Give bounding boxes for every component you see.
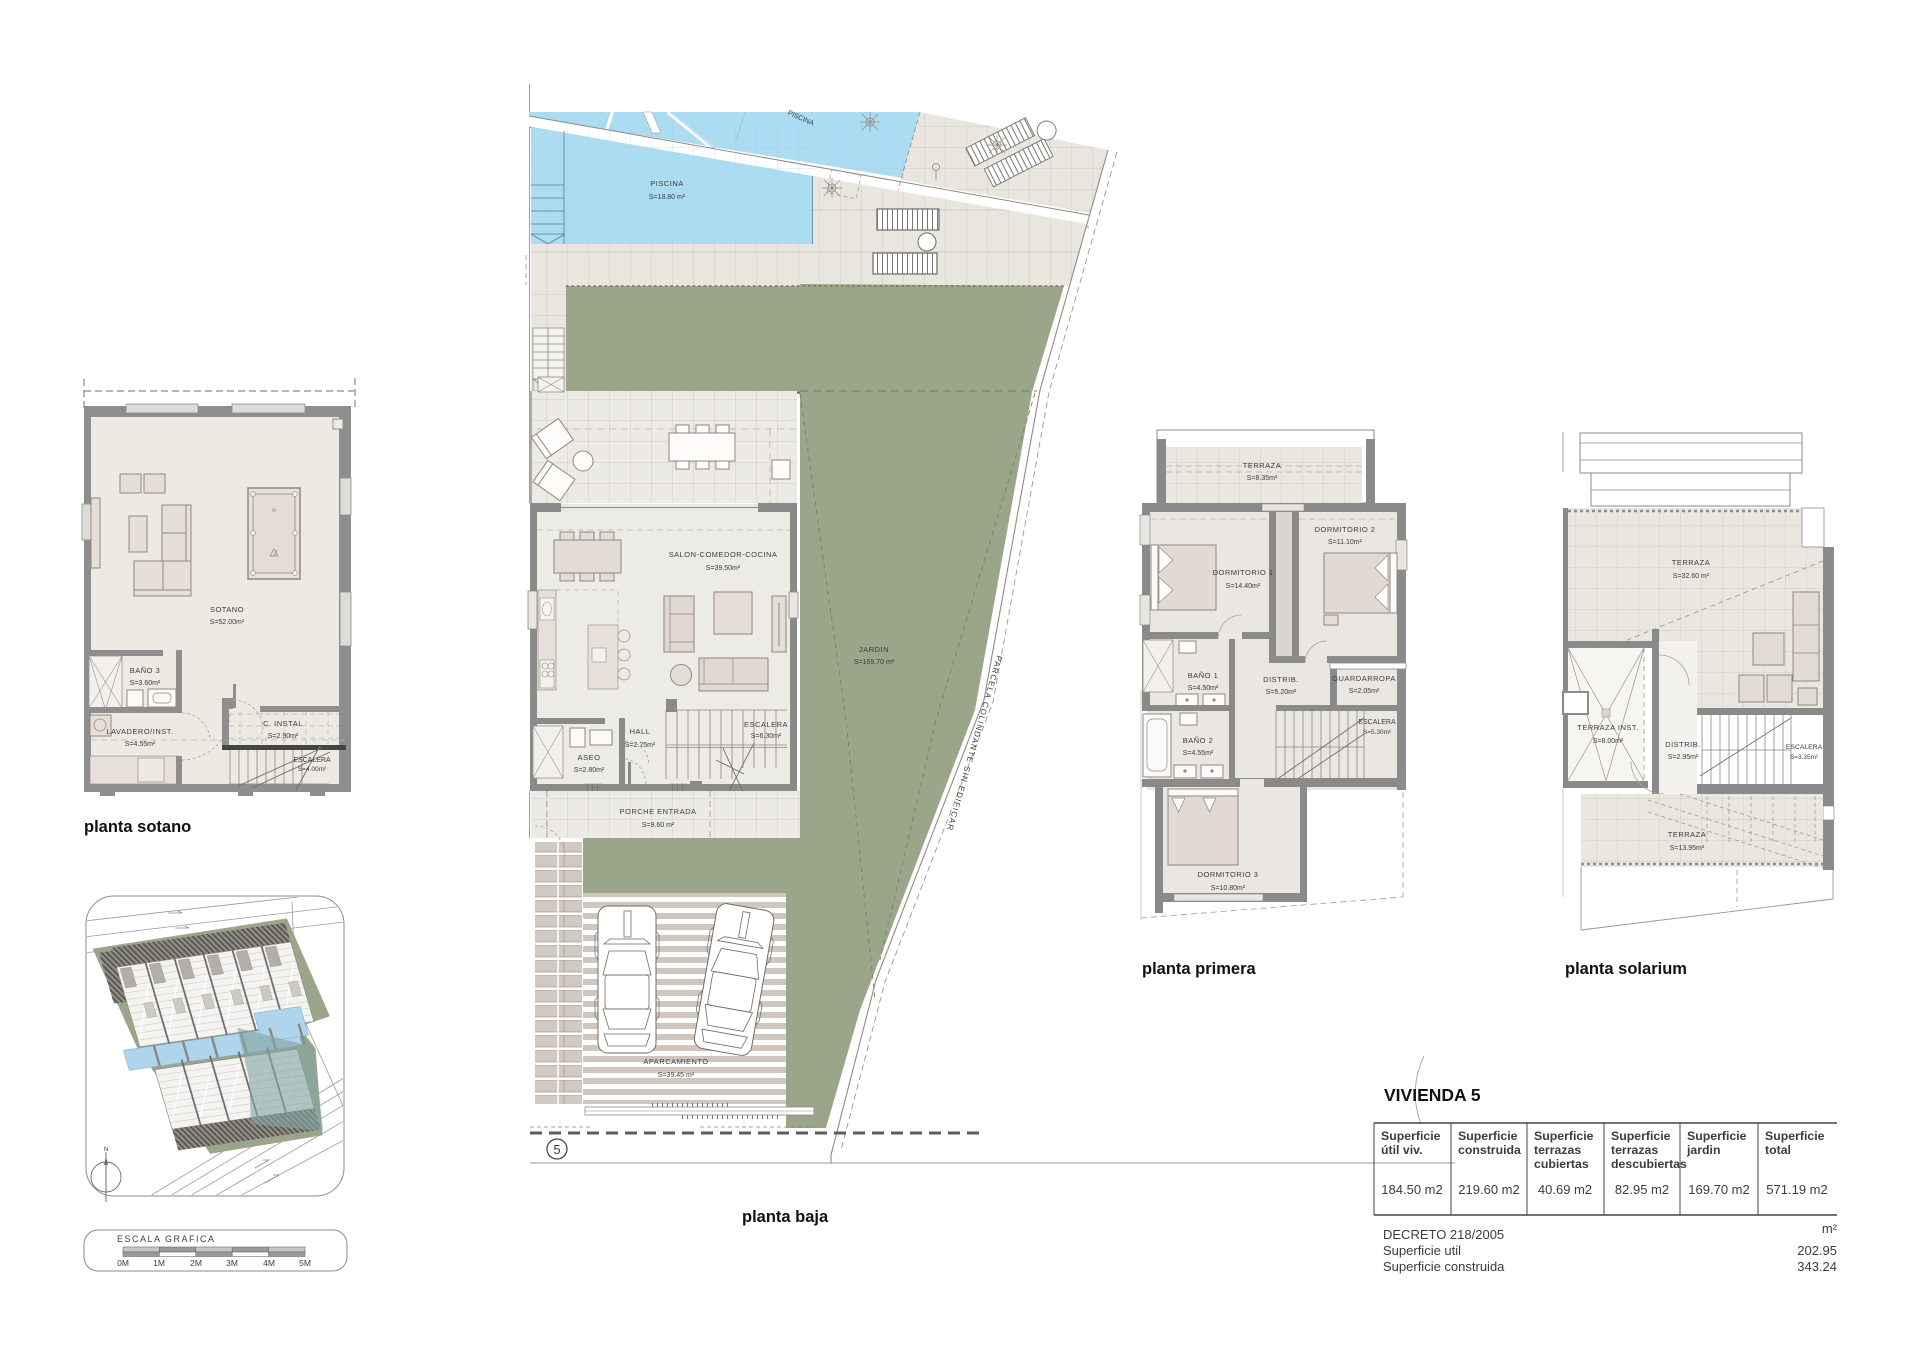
svg-text:descubiertas: descubiertas — [1611, 1157, 1687, 1171]
svg-text:184.50 m2: 184.50 m2 — [1381, 1182, 1442, 1197]
svg-text:DORMITORIO 3: DORMITORIO 3 — [1198, 870, 1259, 879]
svg-text:TERRAZA INST.: TERRAZA INST. — [1577, 723, 1639, 732]
svg-text:202.95: 202.95 — [1797, 1243, 1837, 1258]
svg-text:0M: 0M — [117, 1258, 129, 1268]
svg-text:útil viv.: útil viv. — [1381, 1143, 1422, 1157]
svg-text:GUARDARROPA: GUARDARROPA — [1332, 674, 1396, 683]
svg-text:S=11.10m²: S=11.10m² — [1328, 539, 1363, 546]
svg-text:JARDIN: JARDIN — [859, 645, 889, 654]
svg-text:ESCALA GRAFICA: ESCALA GRAFICA — [117, 1234, 216, 1244]
svg-text:S=4.00m²: S=4.00m² — [298, 766, 327, 773]
svg-text:5M: 5M — [299, 1258, 311, 1268]
svg-text:S=8.35m²: S=8.35m² — [1247, 475, 1278, 482]
svg-text:terrazas: terrazas — [1611, 1143, 1658, 1157]
svg-text:S=14.40m²: S=14.40m² — [1226, 583, 1261, 590]
svg-text:219.60 m2: 219.60 m2 — [1458, 1182, 1519, 1197]
svg-text:PORCHE ENTRADA: PORCHE ENTRADA — [619, 807, 696, 816]
svg-text:1M: 1M — [153, 1258, 165, 1268]
svg-text:ESCALERA: ESCALERA — [293, 757, 331, 764]
svg-text:S=5.30m²: S=5.30m² — [1363, 729, 1392, 736]
svg-text:LAVADERO/INST.: LAVADERO/INST. — [106, 727, 173, 736]
svg-text:PISCINA: PISCINA — [650, 179, 684, 188]
svg-text:BAÑO 2: BAÑO 2 — [1183, 736, 1214, 745]
svg-text:169.70 m2: 169.70 m2 — [1688, 1182, 1749, 1197]
svg-text:ESCALERA: ESCALERA — [1358, 719, 1396, 726]
svg-text:N: N — [104, 1147, 108, 1153]
svg-text:S=4.55m²: S=4.55m² — [125, 741, 156, 748]
svg-text:BAÑO 1: BAÑO 1 — [1188, 671, 1219, 680]
svg-text:S=3.60m²: S=3.60m² — [130, 680, 161, 687]
svg-text:DORMITORIO 2: DORMITORIO 2 — [1315, 525, 1376, 534]
svg-text:TERRAZA: TERRAZA — [1672, 558, 1711, 567]
svg-text:S=6.30m²: S=6.30m² — [751, 733, 782, 740]
svg-text:S=4.50m²: S=4.50m² — [1188, 685, 1219, 692]
svg-text:571.19 m2: 571.19 m2 — [1766, 1182, 1827, 1197]
svg-text:SOTANO: SOTANO — [210, 605, 244, 614]
svg-text:S=39.50m²: S=39.50m² — [706, 565, 741, 572]
svg-text:planta primera: planta primera — [1142, 960, 1257, 978]
svg-text:5: 5 — [553, 1142, 560, 1157]
svg-text:Superficie: Superficie — [1687, 1129, 1747, 1143]
svg-text:terrazas: terrazas — [1534, 1143, 1581, 1157]
svg-text:S=169.70 m²: S=169.70 m² — [854, 659, 895, 666]
svg-text:40.69 m2: 40.69 m2 — [1538, 1182, 1592, 1197]
svg-text:planta sotano: planta sotano — [84, 818, 191, 836]
svg-text:82.95 m2: 82.95 m2 — [1615, 1182, 1669, 1197]
svg-text:343.24: 343.24 — [1797, 1259, 1837, 1274]
svg-text:cubiertas: cubiertas — [1534, 1157, 1589, 1171]
svg-text:S=32.60 m²: S=32.60 m² — [1673, 573, 1710, 580]
svg-text:S=9.60 m²: S=9.60 m² — [642, 822, 675, 829]
svg-text:S=2.95m²: S=2.95m² — [1668, 754, 1699, 761]
svg-text:planta baja: planta baja — [742, 1208, 829, 1226]
svg-text:S=2.05m²: S=2.05m² — [1349, 688, 1380, 695]
svg-text:ESCALERA: ESCALERA — [1786, 744, 1823, 751]
svg-text:Superficie: Superficie — [1458, 1129, 1518, 1143]
svg-text:Superficie: Superficie — [1534, 1129, 1594, 1143]
svg-text:HALL: HALL — [630, 727, 651, 736]
svg-text:ESCALERA: ESCALERA — [744, 720, 788, 729]
svg-text:S=8.00m²: S=8.00m² — [1593, 738, 1624, 745]
svg-text:DISTRIB.: DISTRIB. — [1665, 740, 1701, 749]
svg-text:construida: construida — [1458, 1143, 1521, 1157]
svg-text:Superficie: Superficie — [1381, 1129, 1441, 1143]
svg-text:Superficie construida: Superficie construida — [1383, 1259, 1505, 1274]
svg-text:Superficie util: Superficie util — [1383, 1243, 1461, 1258]
svg-text:ASEO: ASEO — [578, 753, 601, 762]
svg-text:APARCAMIENTO: APARCAMIENTO — [643, 1057, 708, 1066]
svg-text:jardin: jardin — [1686, 1143, 1720, 1157]
svg-text:3M: 3M — [226, 1258, 238, 1268]
svg-text:Superficie: Superficie — [1611, 1129, 1671, 1143]
svg-text:BAÑO 3: BAÑO 3 — [130, 666, 161, 675]
svg-text:2M: 2M — [190, 1258, 202, 1268]
svg-text:planta solarium: planta solarium — [1565, 960, 1687, 978]
svg-text:DISTRIB.: DISTRIB. — [1263, 675, 1299, 684]
svg-text:S=52.00m²: S=52.00m² — [210, 619, 245, 626]
svg-text:S=13.95m²: S=13.95m² — [1670, 845, 1705, 852]
svg-text:S=2.25m²: S=2.25m² — [625, 742, 656, 749]
svg-text:S=5.20m²: S=5.20m² — [1266, 689, 1297, 696]
svg-text:Superficie: Superficie — [1765, 1129, 1825, 1143]
svg-text:S=39.45 m²: S=39.45 m² — [658, 1072, 695, 1079]
svg-text:VIVIENDA 5: VIVIENDA 5 — [1384, 1085, 1481, 1105]
svg-text:4M: 4M — [263, 1258, 275, 1268]
svg-text:m²: m² — [1822, 1221, 1838, 1236]
svg-text:S=4.55m²: S=4.55m² — [1183, 750, 1214, 757]
svg-text:S=10.80m²: S=10.80m² — [1211, 885, 1246, 892]
svg-text:TERRAZA: TERRAZA — [1668, 830, 1707, 839]
svg-text:total: total — [1765, 1143, 1791, 1157]
svg-text:S=2.90m²: S=2.90m² — [268, 733, 299, 740]
svg-text:S=2.80m²: S=2.80m² — [574, 767, 605, 774]
svg-text:DECRETO 218/2005: DECRETO 218/2005 — [1383, 1227, 1504, 1242]
svg-text:C. INSTAL: C. INSTAL — [263, 719, 303, 728]
svg-text:DORMITORIO 1: DORMITORIO 1 — [1213, 568, 1274, 577]
svg-text:SALON-COMEDOR-COCINA: SALON-COMEDOR-COCINA — [669, 550, 778, 559]
svg-text:TERRAZA: TERRAZA — [1243, 461, 1282, 470]
svg-text:S=3.35m²: S=3.35m² — [1790, 754, 1819, 761]
svg-text:S=18.80 m²: S=18.80 m² — [649, 194, 686, 201]
